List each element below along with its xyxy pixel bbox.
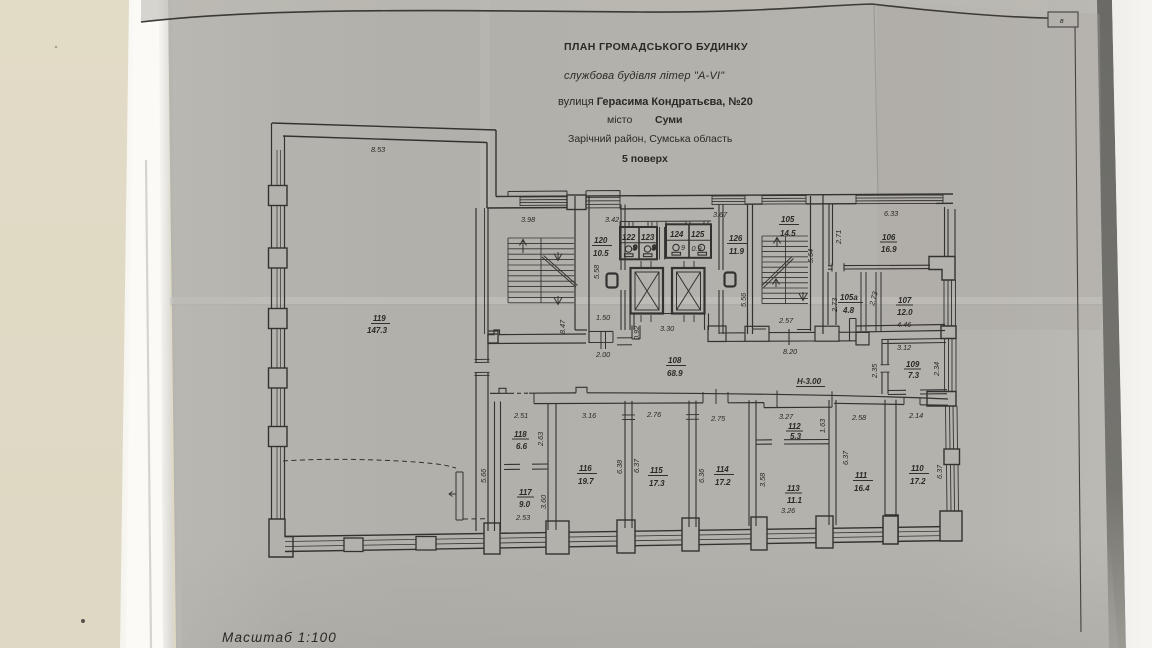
svg-text:3.58: 3.58 [758, 472, 767, 487]
svg-text:2.71: 2.71 [834, 230, 843, 245]
svg-text:14.5: 14.5 [780, 229, 796, 238]
svg-text:126: 126 [729, 234, 743, 243]
svg-text:2.14: 2.14 [908, 411, 923, 420]
svg-text:122: 122 [622, 233, 636, 242]
svg-text:105а: 105а [840, 293, 858, 302]
svg-text:6.37: 6.37 [935, 464, 944, 479]
svg-text:8.20: 8.20 [783, 347, 797, 356]
svg-text:7.3: 7.3 [908, 371, 920, 380]
svg-text:0.92: 0.92 [632, 326, 641, 340]
svg-text:9: 9 [652, 243, 656, 252]
svg-text:5.3: 5.3 [790, 432, 802, 441]
svg-text:2.51: 2.51 [513, 411, 528, 420]
svg-text:Н-3.00: Н-3.00 [797, 377, 822, 386]
svg-text:106: 106 [882, 233, 896, 242]
svg-text:109: 109 [906, 360, 920, 369]
svg-text:19.7: 19.7 [578, 477, 594, 486]
svg-text:2.76: 2.76 [646, 410, 662, 419]
svg-text:вулиця Герасима Кондратьєва,: вулиця Герасима Кондратьєва, №20 [558, 96, 753, 108]
svg-text:2.35: 2.35 [870, 363, 879, 379]
svg-text:3.26: 3.26 [781, 506, 796, 515]
svg-text:111: 111 [855, 471, 868, 480]
svg-text:114: 114 [716, 465, 729, 474]
svg-text:6.37: 6.37 [841, 450, 850, 465]
svg-text:16.4: 16.4 [854, 484, 870, 493]
svg-text:110: 110 [911, 464, 924, 473]
svg-text:2.63: 2.63 [536, 432, 545, 447]
svg-text:107: 107 [898, 296, 912, 305]
svg-text:112: 112 [788, 422, 801, 431]
svg-text:116: 116 [579, 464, 592, 473]
svg-text:9.0: 9.0 [519, 500, 531, 509]
svg-text:123: 123 [641, 233, 655, 242]
svg-text:5.64: 5.64 [806, 249, 815, 263]
svg-text:5.58: 5.58 [592, 264, 601, 279]
svg-text:6.37: 6.37 [632, 458, 641, 473]
svg-text:11.9: 11.9 [729, 247, 745, 256]
svg-text:120: 120 [594, 236, 608, 245]
svg-text:16.9: 16.9 [881, 245, 897, 254]
svg-text:2.57: 2.57 [778, 316, 794, 325]
svg-text:2.53: 2.53 [515, 513, 530, 522]
svg-text:4.8: 4.8 [842, 306, 855, 315]
svg-text:119: 119 [373, 314, 386, 323]
svg-text:3.42: 3.42 [605, 215, 619, 224]
svg-text:17.2: 17.2 [715, 478, 731, 487]
svg-text:124: 124 [670, 230, 684, 239]
svg-text:6.33: 6.33 [884, 209, 898, 218]
svg-text:Масштаб 1:100: Масштаб 1:100 [222, 630, 337, 645]
svg-text:3.98: 3.98 [521, 215, 536, 224]
svg-text:2.00: 2.00 [595, 350, 610, 359]
svg-text:117: 117 [519, 488, 532, 497]
svg-text:9: 9 [681, 243, 685, 252]
svg-text:3.27: 3.27 [779, 412, 794, 421]
svg-text:118: 118 [514, 430, 527, 439]
svg-text:2.34: 2.34 [932, 362, 941, 377]
svg-text:10.5: 10.5 [593, 249, 609, 258]
svg-text:5.56: 5.56 [739, 292, 748, 307]
svg-text:12.0: 12.0 [897, 308, 913, 317]
svg-text:3.16: 3.16 [582, 411, 597, 420]
svg-text:ПЛАН ГРОМАДСЬКОГО БУДИНКУ: ПЛАН ГРОМАДСЬКОГО БУДИНКУ [564, 41, 748, 53]
svg-text:2.58: 2.58 [851, 413, 867, 422]
svg-text:125: 125 [691, 230, 705, 239]
svg-text:68.9: 68.9 [667, 369, 683, 378]
svg-text:Зарічний район, Сумська област: Зарічний район, Сумська область [568, 133, 733, 145]
svg-text:2.75: 2.75 [710, 414, 726, 423]
svg-text:17.2: 17.2 [910, 477, 926, 486]
svg-text:11.1: 11.1 [787, 496, 803, 505]
svg-text:4.46: 4.46 [897, 320, 912, 329]
svg-text:6.36: 6.36 [697, 468, 706, 483]
svg-text:105: 105 [781, 215, 795, 224]
svg-text:3.60: 3.60 [539, 495, 548, 509]
svg-text:5 поверх: 5 поверх [622, 153, 668, 165]
svg-text:5.66: 5.66 [479, 468, 488, 483]
svg-text:115: 115 [650, 466, 663, 475]
svg-text:службова будівля літер "А-VI": службова будівля літер "А-VI" [564, 70, 725, 82]
svg-text:8.47: 8.47 [558, 319, 567, 334]
svg-text:1.50: 1.50 [596, 313, 610, 322]
svg-text:0.9: 0.9 [692, 244, 702, 253]
svg-text:3.67: 3.67 [713, 210, 728, 219]
svg-text:3.12: 3.12 [897, 343, 911, 352]
svg-text:3.30: 3.30 [660, 324, 674, 333]
svg-text:17.3: 17.3 [649, 479, 665, 488]
svg-text:2.73: 2.73 [830, 298, 839, 313]
svg-text:6.38: 6.38 [615, 459, 624, 474]
svg-text:9: 9 [633, 243, 637, 252]
svg-text:8.53: 8.53 [371, 145, 385, 154]
svg-text:108: 108 [668, 356, 682, 365]
svg-text:113: 113 [787, 484, 800, 493]
svg-text:в: в [1060, 18, 1064, 25]
svg-text:1.63: 1.63 [818, 419, 827, 433]
svg-text:147.3: 147.3 [367, 326, 388, 335]
svg-text:6.6: 6.6 [516, 442, 528, 451]
